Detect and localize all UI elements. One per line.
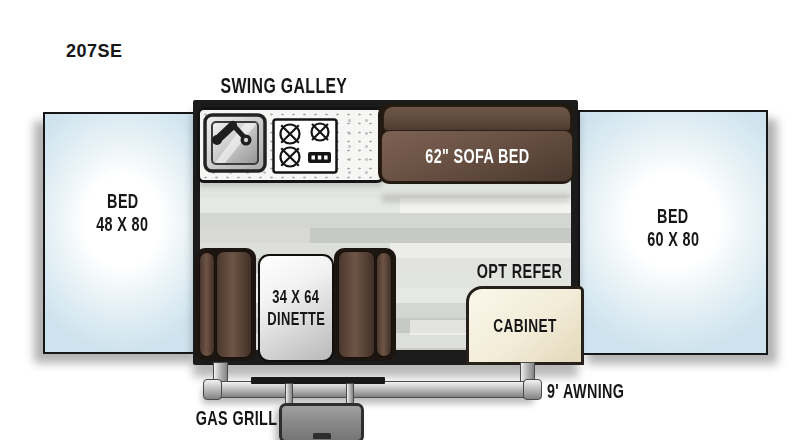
- bench-cushion: [338, 251, 375, 358]
- dinette-bench-left: [195, 248, 256, 361]
- cabinet: CABINET: [466, 286, 584, 365]
- model-number-label: 207SE: [66, 42, 123, 60]
- bench-arm: [376, 252, 392, 357]
- bed-left-name: BED: [107, 190, 138, 213]
- bed-right-name: BED: [657, 205, 688, 228]
- gas-grill-label: GAS GRILL: [150, 408, 277, 428]
- sofa-shadow: [382, 194, 570, 203]
- awning-rail-cap-right: [523, 379, 542, 400]
- cabinet-label: CABINET: [493, 316, 556, 335]
- sofa-seat: 62" SOFA BED: [381, 130, 573, 182]
- swing-galley-text: SWING GALLEY: [221, 75, 348, 97]
- awning-text: 9' AWNING: [547, 381, 624, 401]
- bed-right-size: 60 X 80: [647, 228, 699, 251]
- grill-handle: [313, 433, 331, 439]
- awning-rail-cap-left: [203, 379, 222, 400]
- gas-grill: [279, 403, 364, 440]
- tent-bed-right: BED 60 X 80: [578, 110, 768, 355]
- dinette-name: DINETTE: [267, 308, 325, 330]
- sofa-bed: 62" SOFA BED: [378, 103, 574, 184]
- bench-arm: [199, 252, 215, 357]
- floorplan-canvas: 207SE SWING GALLEY BED 48 X 80 BED 60 X …: [0, 0, 800, 440]
- gas-grill-text: GAS GRILL: [195, 408, 277, 428]
- bed-right-label: BED 60 X 80: [637, 112, 709, 251]
- bed-left-size: 48 X 80: [96, 213, 148, 236]
- stove-burners-icon: [272, 118, 338, 174]
- awning-label: 9' AWNING: [547, 381, 697, 401]
- grill-mount-bar: [251, 377, 385, 384]
- kitchen-sink-icon: [203, 113, 267, 173]
- sofa-backrest: [383, 106, 571, 131]
- dinette-bench-right: [334, 248, 396, 361]
- floor-plank: [200, 228, 310, 243]
- dinette-size: 34 X 64: [272, 286, 319, 308]
- swing-galley-label: SWING GALLEY: [196, 75, 356, 97]
- opt-refer-text: OPT REFER: [477, 261, 563, 281]
- dinette-table: 34 X 64 DINETTE: [258, 254, 334, 362]
- bench-cushion: [216, 251, 252, 358]
- opt-refer-label: OPT REFER: [460, 261, 560, 281]
- tent-bed-left: BED 48 X 80: [43, 112, 202, 354]
- sofa-bed-label: 62" SOFA BED: [425, 145, 529, 168]
- bed-left-label: BED 48 X 80: [86, 114, 158, 236]
